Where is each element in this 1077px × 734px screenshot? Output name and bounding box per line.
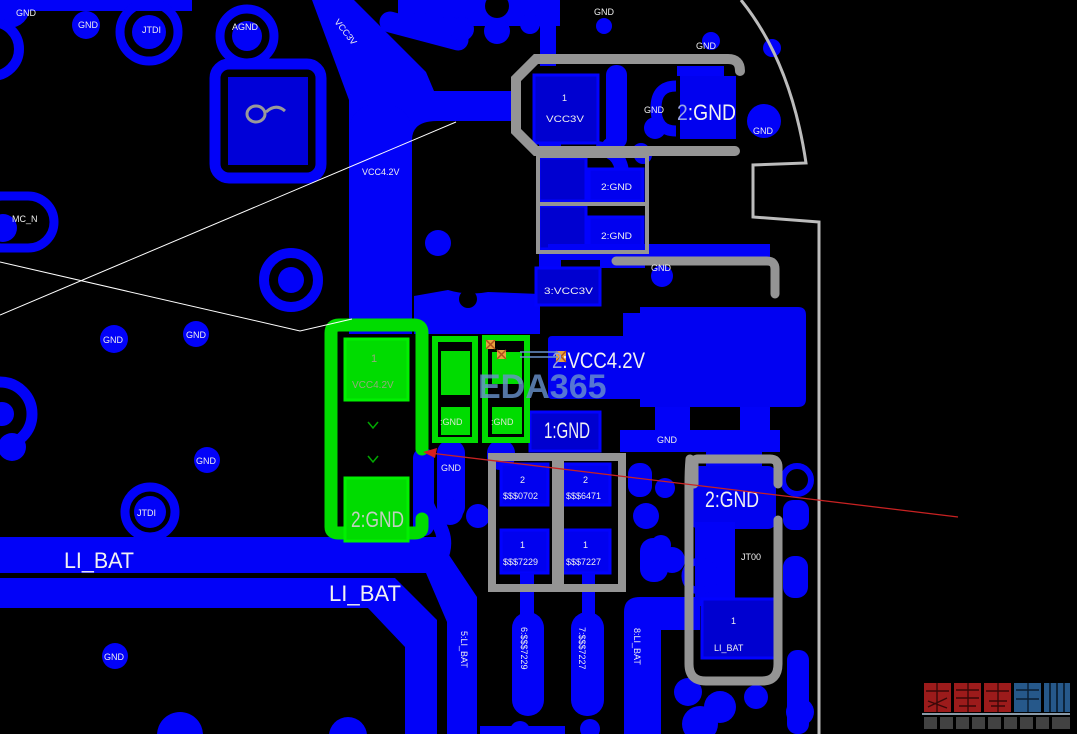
svg-text:1: 1 (731, 616, 736, 626)
svg-text:EDA365: EDA365 (478, 368, 607, 406)
svg-text:LI_BAT: LI_BAT (714, 643, 744, 653)
svg-text:5:LI_BAT: 5:LI_BAT (459, 631, 469, 668)
svg-text:2:GND: 2:GND (351, 507, 404, 532)
svg-text:GND: GND (753, 126, 774, 136)
svg-text::GND: :GND (491, 417, 514, 427)
svg-text:2:GND: 2:GND (677, 100, 736, 125)
svg-text:1: 1 (371, 353, 377, 365)
svg-text:VCC3V: VCC3V (546, 114, 584, 124)
svg-text:MC_N: MC_N (12, 214, 38, 224)
svg-text:VCC4.2V: VCC4.2V (362, 167, 400, 177)
svg-text:1: 1 (562, 93, 567, 103)
svg-text:GND: GND (196, 456, 217, 466)
svg-text:6:$$$7229: 6:$$$7229 (519, 627, 529, 670)
svg-text:$$$6471: $$$6471 (566, 491, 601, 501)
svg-text:GND: GND (696, 41, 717, 51)
svg-text:GND: GND (644, 105, 665, 115)
svg-text:2: 2 (583, 475, 588, 485)
svg-text:$$$7227: $$$7227 (566, 557, 601, 567)
svg-text:JT00: JT00 (741, 552, 761, 562)
svg-text:GND: GND (78, 20, 99, 30)
svg-text:JTDI: JTDI (142, 25, 161, 35)
svg-text:GND: GND (594, 7, 615, 17)
svg-text:GND: GND (441, 463, 462, 473)
svg-text:$$$0702: $$$0702 (503, 491, 538, 501)
svg-text:1:GND: 1:GND (544, 418, 590, 443)
svg-text:2: 2 (520, 475, 525, 485)
svg-text:JTDI: JTDI (137, 508, 156, 518)
svg-text:7:$$$7227: 7:$$$7227 (577, 627, 587, 670)
svg-text:GND: GND (103, 335, 124, 345)
svg-text:GND: GND (16, 8, 37, 18)
svg-text:1: 1 (520, 540, 525, 550)
svg-text:GND: GND (104, 652, 125, 662)
svg-text::GND: :GND (440, 417, 463, 427)
svg-text:GND: GND (657, 435, 678, 445)
svg-text:LI_BAT: LI_BAT (64, 548, 134, 573)
svg-text:8:LI_BAT: 8:LI_BAT (632, 628, 642, 665)
svg-text:VCC4.2V: VCC4.2V (352, 380, 394, 391)
svg-text:2:GND: 2:GND (705, 487, 759, 512)
svg-text:2:GND: 2:GND (601, 231, 633, 241)
svg-text:$$$7229: $$$7229 (503, 557, 538, 567)
svg-text:AGND: AGND (232, 22, 259, 32)
svg-text:3:VCC3V: 3:VCC3V (544, 286, 593, 296)
svg-text:LI_BAT: LI_BAT (329, 581, 401, 606)
svg-text:2:GND: 2:GND (601, 182, 633, 192)
svg-text:GND: GND (186, 330, 207, 340)
svg-text:GND: GND (651, 263, 672, 273)
svg-text:1: 1 (583, 540, 588, 550)
